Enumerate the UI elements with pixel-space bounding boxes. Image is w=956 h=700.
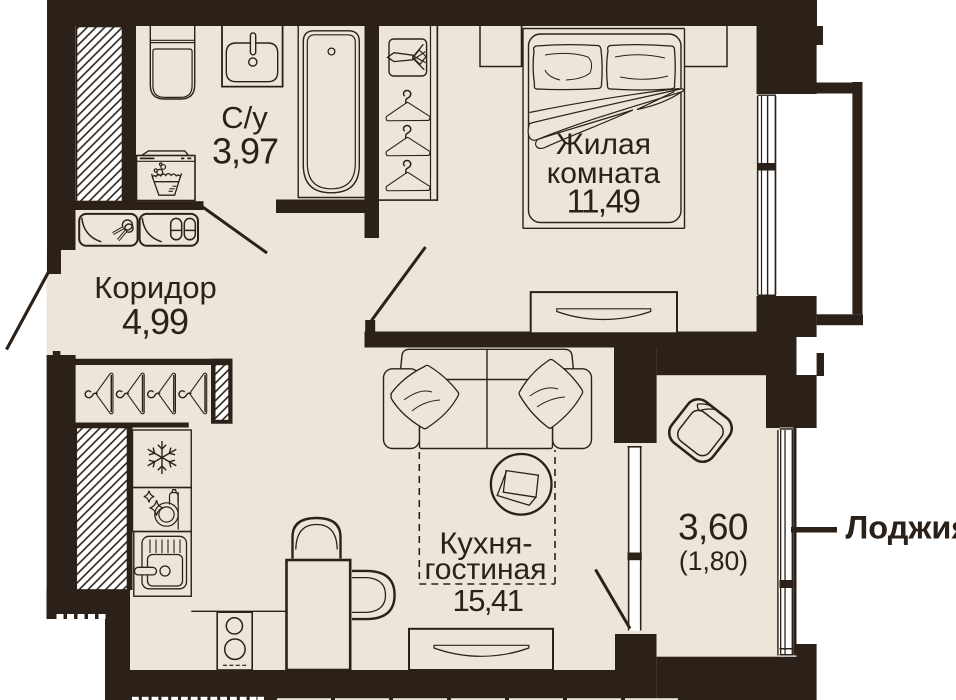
svg-text:гостиная: гостиная [425, 553, 547, 586]
svg-text:(1,80): (1,80) [679, 546, 748, 576]
svg-text:Коридор: Коридор [94, 270, 216, 305]
svg-text:15,41: 15,41 [452, 583, 522, 618]
svg-text:Лоджия: Лоджия [846, 510, 956, 546]
svg-text:11,49: 11,49 [567, 183, 640, 220]
svg-text:4,99: 4,99 [122, 301, 188, 342]
svg-text:3,97: 3,97 [212, 131, 278, 172]
svg-text:3,60: 3,60 [678, 507, 748, 548]
